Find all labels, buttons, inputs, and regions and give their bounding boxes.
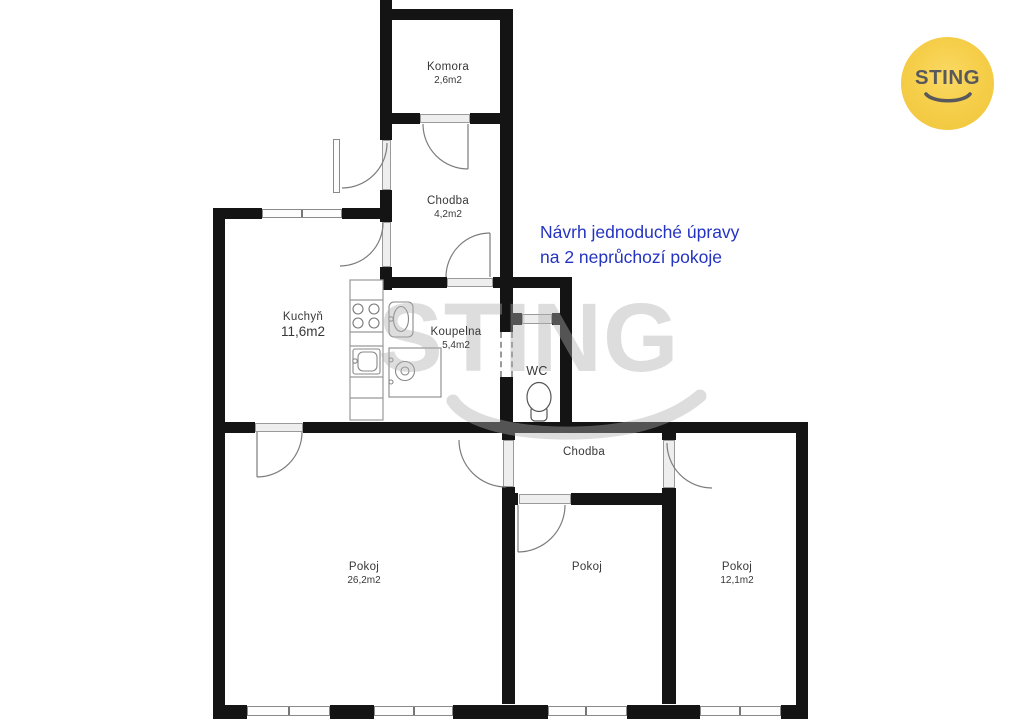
door-opening (382, 140, 391, 190)
door-opening (503, 440, 514, 487)
wall (627, 705, 700, 719)
wall (213, 705, 247, 719)
wall (330, 705, 374, 719)
wall (453, 705, 548, 719)
wall (502, 487, 515, 704)
door-opening (420, 114, 470, 123)
wall (502, 432, 515, 440)
room-label-pokoj-right: Pokoj 12,1m2 (720, 561, 753, 587)
window (700, 706, 781, 716)
wall (796, 422, 808, 719)
kitchen-sink-icon (353, 349, 380, 374)
kitchen-counter (350, 280, 383, 420)
sting-logo-text: STING (915, 66, 980, 90)
wall (502, 493, 518, 505)
wall (342, 208, 392, 219)
wall (303, 422, 808, 433)
wall (505, 313, 522, 325)
wall (571, 493, 676, 505)
wall (493, 277, 570, 288)
door-opening (382, 222, 391, 267)
door-arc (257, 432, 302, 477)
wall (383, 277, 447, 288)
wall (552, 313, 570, 325)
washbasin-icon (389, 302, 413, 337)
window (262, 209, 342, 218)
door-arcs (257, 124, 712, 552)
door-arc (459, 440, 506, 487)
room-label-koupelna: Koupelna 5,4m2 (431, 326, 482, 352)
floorplan-canvas: STING Komora 2,6m2 Chodba 4,2m2 Kuchyň 1… (0, 0, 1024, 724)
sting-logo: STING (901, 37, 994, 130)
wall (380, 113, 420, 124)
room-label-komora: Komora 2,6m2 (427, 61, 469, 87)
stove-icon (353, 304, 379, 328)
room-label-chodba-upper: Chodba 4,2m2 (427, 195, 469, 221)
wall (781, 705, 808, 719)
window (247, 706, 330, 716)
proposed-wall-dashed (500, 332, 513, 377)
wall (560, 277, 572, 432)
door-opening (663, 440, 675, 488)
room-label-pokoj-middle: Pokoj (572, 561, 602, 574)
wall (662, 432, 676, 440)
window (548, 706, 627, 716)
annotation-line1: Návrh jednoduché úpravy (540, 220, 739, 245)
door-opening (522, 314, 552, 324)
annotation-line2: na 2 neprůchozí pokoje (540, 245, 739, 270)
door-arc (518, 505, 565, 552)
room-label-pokoj-large: Pokoj 26,2m2 (347, 561, 380, 587)
door-arc (340, 223, 383, 266)
washing-machine-icon (389, 348, 441, 397)
sting-logo-smile-icon (920, 90, 976, 108)
wall (213, 422, 255, 433)
window (333, 139, 340, 193)
proposal-annotation: Návrh jednoduché úpravy na 2 neprůchozí … (540, 220, 739, 270)
wall (380, 9, 512, 20)
toilet-icon (527, 383, 551, 422)
door-opening (447, 278, 493, 287)
window (374, 706, 453, 716)
wall (662, 488, 676, 704)
room-label-chodba-lower: Chodba (563, 446, 605, 459)
door-opening (255, 423, 303, 432)
door-arc (423, 124, 468, 169)
door-arc (446, 233, 490, 277)
room-label-kuchyn: Kuchyň 11,6m2 (281, 311, 325, 340)
wall (213, 208, 225, 719)
room-label-wc: WC (526, 365, 547, 378)
door-arc (342, 143, 387, 188)
door-opening (519, 494, 571, 504)
